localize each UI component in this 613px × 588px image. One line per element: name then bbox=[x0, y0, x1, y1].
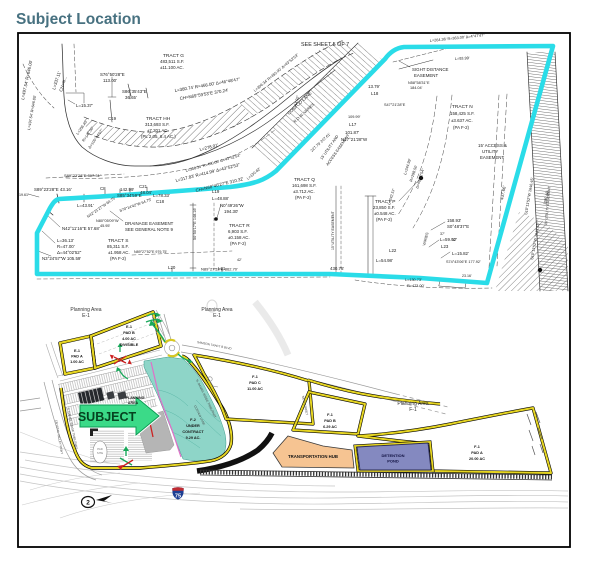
svg-text:L18: L18 bbox=[371, 91, 379, 96]
svg-text:±0.548 AC.: ±0.548 AC. bbox=[374, 211, 396, 216]
svg-text:DRAINAGE EASEMENT: DRAINAGE EASEMENT bbox=[125, 221, 174, 226]
svg-text:4.00 AC: 4.00 AC bbox=[122, 337, 136, 341]
svg-text:N42°11'16"E 57.68': N42°11'16"E 57.68' bbox=[62, 226, 100, 231]
svg-text:483,511 S.F.: 483,511 S.F. bbox=[160, 59, 184, 64]
svg-text:TRACT N: TRACT N bbox=[452, 104, 473, 110]
svg-text:(PA F-2): (PA F-2) bbox=[295, 195, 312, 200]
svg-text:PAD C: PAD C bbox=[249, 381, 261, 385]
svg-text:CONTRACT: CONTRACT bbox=[182, 430, 204, 434]
svg-text:DIVISIBLE: DIVISIBLE bbox=[120, 343, 139, 347]
svg-text:S89°23'28"E 367.31': S89°23'28"E 367.31' bbox=[64, 173, 101, 178]
svg-text:S47°21'28"E: S47°21'28"E bbox=[384, 103, 406, 107]
svg-text:N80°05'09"W: N80°05'09"W bbox=[96, 219, 119, 223]
svg-text:E-1: E-1 bbox=[82, 313, 90, 319]
svg-text:UNDER: UNDER bbox=[186, 424, 200, 428]
svg-text:L=15.37': L=15.37' bbox=[76, 103, 93, 108]
svg-text:L20: L20 bbox=[168, 265, 176, 270]
svg-text:9.29 AC.: 9.29 AC. bbox=[186, 436, 201, 440]
svg-text:DETENTION: DETENTION bbox=[381, 453, 404, 458]
svg-text:C19: C19 bbox=[108, 116, 117, 121]
svg-text:184.04': 184.04' bbox=[410, 86, 423, 90]
svg-text:SEE GENERAL NOTE 9: SEE GENERAL NOTE 9 bbox=[125, 227, 173, 232]
svg-text:UTILITY: UTILITY bbox=[482, 149, 498, 154]
svg-text:±3.712 AC.: ±3.712 AC. bbox=[293, 189, 315, 194]
svg-text:S85°34'59"E: S85°34'59"E bbox=[117, 193, 142, 198]
svg-text:N58°58'31"E: N58°58'31"E bbox=[408, 81, 430, 85]
svg-text:45.95': 45.95' bbox=[100, 224, 111, 228]
svg-text:37': 37' bbox=[452, 238, 457, 242]
svg-text:AREA: AREA bbox=[128, 401, 139, 405]
svg-text:15' ACCESS &: 15' ACCESS & bbox=[478, 143, 507, 148]
svg-text:194.30': 194.30' bbox=[224, 209, 238, 214]
svg-text:L19: L19 bbox=[212, 189, 220, 194]
svg-text:L23: L23 bbox=[441, 244, 449, 249]
svg-text:42': 42' bbox=[237, 258, 242, 262]
svg-text:TRANSPORTATION HUB: TRANSPORTATION HUB bbox=[288, 454, 338, 459]
svg-text:L22: L22 bbox=[389, 248, 397, 253]
svg-text:2: 2 bbox=[86, 500, 90, 507]
svg-text:EASEMENT: EASEMENT bbox=[414, 73, 438, 78]
svg-text:313,693 S.F.: 313,693 S.F. bbox=[145, 122, 170, 127]
svg-text:161,698 S.F.: 161,698 S.F. bbox=[292, 183, 317, 188]
svg-text:L=48.88': L=48.88' bbox=[212, 196, 229, 201]
svg-text:430.75': 430.75' bbox=[330, 266, 344, 271]
svg-text:(PA F-2): (PA F-2) bbox=[110, 256, 127, 261]
svg-text:11.00 AC: 11.00 AC bbox=[247, 387, 263, 391]
svg-text:109.99': 109.99' bbox=[348, 115, 361, 119]
svg-text:E-1: E-1 bbox=[74, 349, 80, 353]
svg-text:L=15.82': L=15.82' bbox=[452, 251, 469, 256]
svg-text:PLANNING: PLANNING bbox=[126, 396, 145, 400]
svg-text:F-1: F-1 bbox=[409, 407, 417, 413]
svg-text:15' UTILITY EASEMENT: 15' UTILITY EASEMENT bbox=[331, 210, 335, 250]
svg-text:PAD A: PAD A bbox=[71, 355, 83, 359]
svg-text:36.65': 36.65' bbox=[125, 95, 137, 100]
svg-text:R=47.00': R=47.00' bbox=[57, 244, 75, 249]
svg-text:L=93.99': L=93.99' bbox=[455, 56, 470, 61]
svg-text:N89°27'52"E 862.70': N89°27'52"E 862.70' bbox=[201, 267, 238, 272]
svg-text:N0°49'26"W: N0°49'26"W bbox=[220, 203, 245, 208]
svg-text:(PA F-2): (PA F-2) bbox=[230, 241, 247, 246]
svg-text:L=54.98': L=54.98' bbox=[376, 258, 393, 263]
svg-text:1.00 AC: 1.00 AC bbox=[70, 360, 84, 364]
svg-text:S86°35'43"E: S86°35'43"E bbox=[122, 89, 147, 94]
svg-text:L=78.33': L=78.33' bbox=[153, 193, 170, 198]
svg-text:±11.100 AC.: ±11.100 AC. bbox=[160, 65, 184, 70]
svg-text:±3.637 AC.: ±3.637 AC. bbox=[451, 118, 473, 123]
svg-text:23.16': 23.16' bbox=[462, 274, 472, 278]
svg-text:37': 37' bbox=[440, 232, 445, 236]
svg-text:PAD A: PAD A bbox=[471, 451, 483, 455]
svg-text:(PL 2.05, 8.4 AC.): (PL 2.05, 8.4 AC.) bbox=[141, 134, 176, 139]
svg-text:±1.958 AC.: ±1.958 AC. bbox=[108, 250, 130, 255]
svg-text:Δ=44°02'52": Δ=44°02'52" bbox=[57, 250, 82, 255]
svg-text:E-1: E-1 bbox=[126, 325, 132, 329]
svg-text:S89°23'28"E 43.16': S89°23'28"E 43.16' bbox=[34, 187, 72, 192]
svg-text:F-2: F-2 bbox=[190, 418, 196, 422]
svg-text:6,903 S.F.: 6,903 S.F. bbox=[228, 229, 248, 234]
svg-text:50°50'17"E 148.16': 50°50'17"E 148.16' bbox=[193, 208, 197, 240]
svg-text:20.00 AC: 20.00 AC bbox=[469, 457, 485, 461]
svg-text:13.79': 13.79' bbox=[368, 84, 380, 89]
svg-text:(PA F-2): (PA F-2) bbox=[453, 125, 470, 130]
svg-text:SIGHT DISTANCE: SIGHT DISTANCE bbox=[412, 67, 449, 72]
svg-text:N89°27'52"E 979.75': N89°27'52"E 979.75' bbox=[134, 250, 167, 254]
svg-text:6.29 AC: 6.29 AC bbox=[323, 425, 337, 429]
svg-text:48.04': 48.04' bbox=[140, 190, 152, 195]
svg-text:F-1: F-1 bbox=[327, 413, 333, 417]
svg-text:F-1: F-1 bbox=[474, 445, 480, 449]
svg-text:S0°48'37"E: S0°48'37"E bbox=[447, 224, 469, 229]
svg-text:113.00': 113.00' bbox=[103, 78, 117, 83]
svg-text:158,425 S.F.: 158,425 S.F. bbox=[450, 111, 475, 116]
svg-text:(PA F-2): (PA F-2) bbox=[376, 217, 393, 222]
svg-text:POND: POND bbox=[387, 459, 399, 464]
svg-text:±0.158 AC.: ±0.158 AC. bbox=[228, 235, 250, 240]
svg-text:L=130.73': L=130.73' bbox=[405, 278, 422, 282]
svg-text:SEE SHEET 5 OF 7: SEE SHEET 5 OF 7 bbox=[301, 42, 349, 48]
svg-text:PAD B: PAD B bbox=[123, 331, 135, 335]
svg-text:N3°24'57"W 105.59': N3°24'57"W 105.59' bbox=[42, 256, 81, 261]
svg-text:L17: L17 bbox=[349, 122, 357, 127]
svg-text:L=43.91': L=43.91' bbox=[77, 203, 94, 208]
svg-text:142.99': 142.99' bbox=[120, 187, 134, 192]
svg-text:158.93': 158.93' bbox=[447, 218, 461, 223]
svg-text:EASEMENT: EASEMENT bbox=[480, 155, 504, 160]
svg-text:PAD B: PAD B bbox=[324, 419, 336, 423]
svg-text:L=36.13': L=36.13' bbox=[57, 238, 74, 243]
svg-text:75: 75 bbox=[175, 494, 181, 500]
svg-text:S76°50'28"E: S76°50'28"E bbox=[100, 72, 125, 77]
svg-text:F-1: F-1 bbox=[252, 375, 258, 379]
svg-text:C21: C21 bbox=[139, 184, 148, 189]
svg-text:±7.201 AC.: ±7.201 AC. bbox=[147, 128, 169, 133]
svg-text:E-1: E-1 bbox=[213, 313, 221, 319]
svg-text:S74°43'06"E 177.92': S74°43'06"E 177.92' bbox=[446, 260, 481, 264]
svg-text:23,850 S.F.: 23,850 S.F. bbox=[373, 205, 395, 210]
svg-text:SUBJECT: SUBJECT bbox=[78, 410, 137, 424]
svg-text:C8: C8 bbox=[100, 186, 106, 191]
svg-text:R=473.00': R=473.00' bbox=[407, 284, 425, 288]
svg-text:19.61': 19.61' bbox=[19, 193, 29, 197]
svg-text:SITE: SITE bbox=[97, 451, 103, 455]
svg-text:C18: C18 bbox=[156, 199, 165, 204]
svg-text:85,311 S.F.: 85,311 S.F. bbox=[107, 244, 129, 249]
